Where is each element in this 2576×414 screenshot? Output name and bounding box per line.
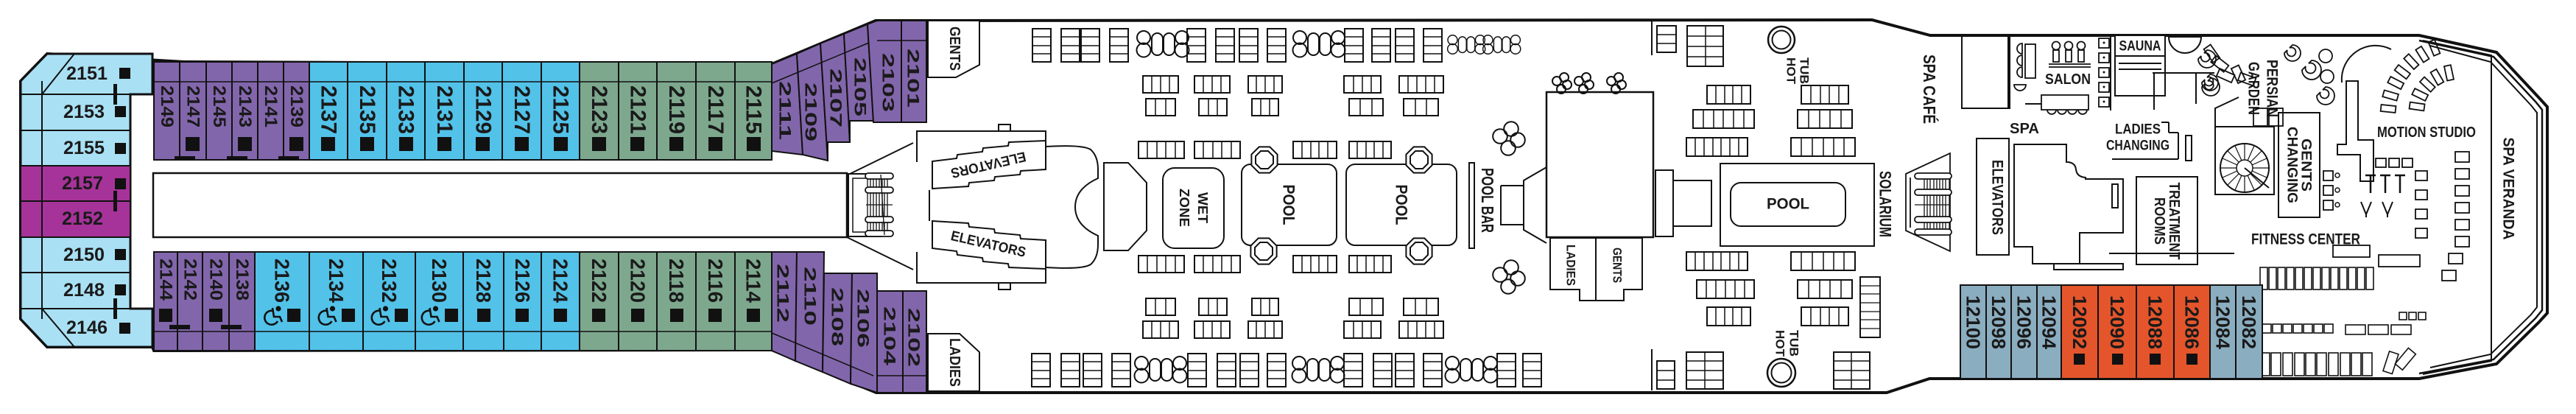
svg-text:2110: 2110 bbox=[801, 267, 820, 326]
svg-text:2149: 2149 bbox=[157, 85, 177, 127]
svg-text:2106: 2106 bbox=[854, 289, 873, 348]
svg-text:2116: 2116 bbox=[704, 259, 727, 303]
svg-text:2123: 2123 bbox=[587, 85, 611, 134]
svg-text:TUB: TUB bbox=[1798, 57, 1812, 84]
svg-text:2125: 2125 bbox=[549, 85, 573, 134]
svg-text:2148: 2148 bbox=[63, 280, 105, 301]
svg-text:2109: 2109 bbox=[802, 83, 820, 141]
svg-text:2101: 2101 bbox=[904, 49, 923, 108]
svg-text:12082: 12082 bbox=[2238, 295, 2260, 349]
svg-text:2127: 2127 bbox=[510, 85, 534, 134]
svg-text:2114: 2114 bbox=[742, 259, 765, 303]
svg-text:2104: 2104 bbox=[881, 306, 899, 366]
svg-text:2119: 2119 bbox=[664, 85, 689, 134]
svg-text:GENTS: GENTS bbox=[946, 27, 963, 71]
svg-text:2143: 2143 bbox=[235, 85, 255, 127]
svg-text:TUB: TUB bbox=[1787, 330, 1801, 357]
svg-text:2115: 2115 bbox=[742, 85, 766, 134]
svg-text:2144: 2144 bbox=[156, 259, 176, 301]
svg-text:2124: 2124 bbox=[549, 259, 572, 303]
svg-text:2155: 2155 bbox=[63, 138, 105, 158]
svg-text:12094: 12094 bbox=[2038, 295, 2061, 350]
svg-text:POOL: POOL bbox=[1767, 196, 1809, 213]
svg-text:12092: 12092 bbox=[2069, 295, 2091, 349]
svg-text:LADIES: LADIES bbox=[946, 338, 963, 387]
svg-text:2112: 2112 bbox=[774, 264, 792, 323]
svg-text:MOTION STUDIO: MOTION STUDIO bbox=[2377, 124, 2476, 141]
svg-text:2105: 2105 bbox=[851, 57, 870, 116]
svg-text:ROOMS: ROOMS bbox=[2151, 197, 2167, 245]
svg-text:ZONE: ZONE bbox=[1177, 189, 1192, 227]
svg-text:12086: 12086 bbox=[2181, 295, 2203, 349]
svg-text:SALON: SALON bbox=[2045, 71, 2091, 88]
svg-text:GARDEN: GARDEN bbox=[2245, 62, 2262, 115]
svg-text:2117: 2117 bbox=[703, 85, 728, 134]
svg-text:2136: 2136 bbox=[271, 259, 294, 303]
svg-text:2134: 2134 bbox=[325, 259, 348, 303]
svg-text:2140: 2140 bbox=[206, 259, 226, 301]
svg-text:12096: 12096 bbox=[2013, 295, 2035, 349]
svg-text:12100: 12100 bbox=[1963, 295, 1985, 349]
svg-text:2128: 2128 bbox=[472, 259, 495, 303]
svg-text:2121: 2121 bbox=[626, 85, 650, 134]
svg-text:SAUNA: SAUNA bbox=[2119, 39, 2161, 55]
svg-text:2139: 2139 bbox=[286, 85, 306, 127]
svg-text:HOT: HOT bbox=[1773, 330, 1787, 357]
svg-text:2141: 2141 bbox=[261, 85, 281, 127]
svg-text:ELEVATORS: ELEVATORS bbox=[1989, 160, 2006, 235]
svg-text:POOL BAR: POOL BAR bbox=[1478, 168, 1497, 233]
svg-text:CHANGING: CHANGING bbox=[2284, 127, 2300, 203]
svg-text:12084: 12084 bbox=[2212, 295, 2234, 350]
svg-text:2153: 2153 bbox=[63, 102, 105, 122]
svg-text:2130: 2130 bbox=[428, 259, 451, 303]
svg-text:SPA CAFÉ: SPA CAFÉ bbox=[1920, 55, 1940, 124]
svg-text:GENTS: GENTS bbox=[2298, 138, 2314, 192]
svg-text:HOT: HOT bbox=[1784, 57, 1798, 85]
svg-text:WET: WET bbox=[1195, 192, 1210, 223]
svg-text:12098: 12098 bbox=[1988, 295, 2010, 349]
svg-text:SPA: SPA bbox=[2010, 121, 2039, 137]
svg-text:LADIES: LADIES bbox=[2115, 122, 2161, 138]
svg-text:2111: 2111 bbox=[776, 81, 795, 140]
svg-text:12090: 12090 bbox=[2106, 295, 2128, 349]
svg-text:CHANGING: CHANGING bbox=[2106, 138, 2169, 154]
svg-text:12088: 12088 bbox=[2144, 295, 2167, 349]
svg-text:2103: 2103 bbox=[879, 53, 898, 112]
svg-text:2137: 2137 bbox=[317, 85, 341, 134]
svg-text:GENTS: GENTS bbox=[1611, 248, 1625, 283]
svg-text:2118: 2118 bbox=[665, 259, 688, 303]
svg-text:LADIES: LADIES bbox=[1564, 245, 1578, 286]
svg-text:2145: 2145 bbox=[209, 85, 229, 127]
svg-text:2122: 2122 bbox=[588, 259, 610, 303]
svg-text:2108: 2108 bbox=[828, 287, 847, 346]
svg-text:2146: 2146 bbox=[66, 317, 108, 338]
svg-text:2120: 2120 bbox=[627, 259, 650, 303]
svg-text:2138: 2138 bbox=[232, 259, 252, 301]
svg-text:2150: 2150 bbox=[63, 245, 105, 265]
svg-text:POOL: POOL bbox=[1280, 185, 1298, 225]
svg-text:2132: 2132 bbox=[378, 259, 401, 303]
svg-text:2107: 2107 bbox=[827, 69, 845, 127]
svg-text:POOL: POOL bbox=[1393, 185, 1411, 225]
svg-text:2129: 2129 bbox=[471, 85, 496, 134]
svg-text:2133: 2133 bbox=[394, 85, 418, 134]
svg-text:2152: 2152 bbox=[62, 208, 103, 229]
svg-text:2131: 2131 bbox=[432, 85, 457, 134]
svg-text:SPA VERANDA: SPA VERANDA bbox=[2500, 138, 2517, 240]
svg-text:2142: 2142 bbox=[180, 259, 200, 301]
svg-text:2151: 2151 bbox=[66, 63, 108, 84]
svg-text:SOLARIUM: SOLARIUM bbox=[1876, 171, 1895, 237]
svg-text:2157: 2157 bbox=[62, 173, 103, 194]
svg-text:2126: 2126 bbox=[511, 259, 534, 303]
svg-text:TREATMENT: TREATMENT bbox=[2166, 183, 2182, 260]
svg-text:2135: 2135 bbox=[355, 85, 379, 134]
svg-text:2102: 2102 bbox=[905, 308, 923, 367]
svg-text:2147: 2147 bbox=[183, 85, 203, 127]
